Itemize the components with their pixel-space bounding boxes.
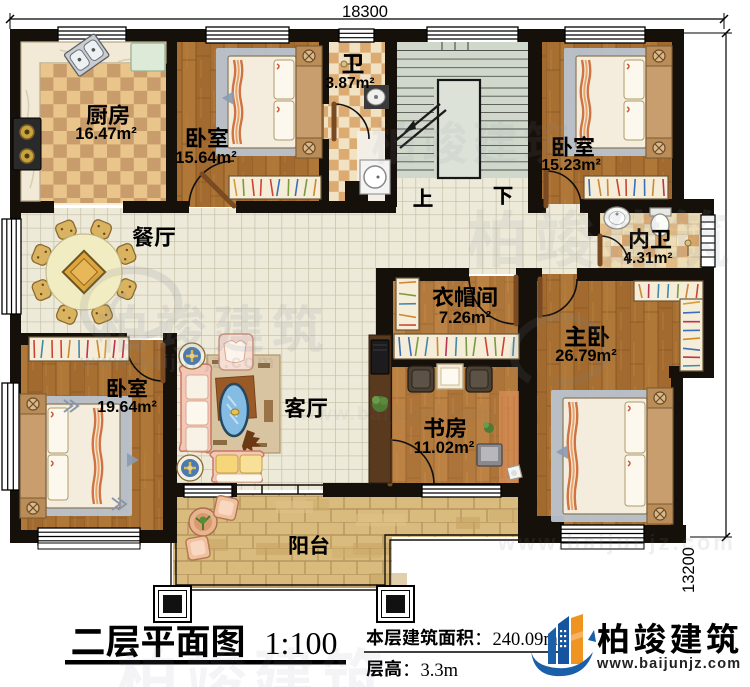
svg-text:19.64m²: 19.64m²	[97, 399, 157, 416]
svg-text:www.baijunjz.com: www.baijunjz.com	[596, 656, 741, 672]
svg-text:3.87m²: 3.87m²	[325, 75, 374, 92]
svg-text:18300: 18300	[342, 3, 388, 21]
svg-text:15.64m²: 15.64m²	[175, 149, 237, 167]
svg-text:www.baijunjz.com: www.baijunjz.com	[497, 530, 736, 555]
svg-text:11.02m²: 11.02m²	[414, 439, 475, 457]
svg-text:：3.3m: ：3.3m	[402, 661, 459, 681]
svg-text:16.47m²: 16.47m²	[75, 125, 137, 143]
svg-text:www.baijunjz.com: www.baijunjz.com	[299, 404, 496, 425]
svg-text:7.26m²: 7.26m²	[439, 309, 492, 327]
svg-text:15.23m²: 15.23m²	[541, 157, 601, 174]
svg-text:www.baijunjz.com: www.baijunjz.com	[79, 352, 276, 373]
